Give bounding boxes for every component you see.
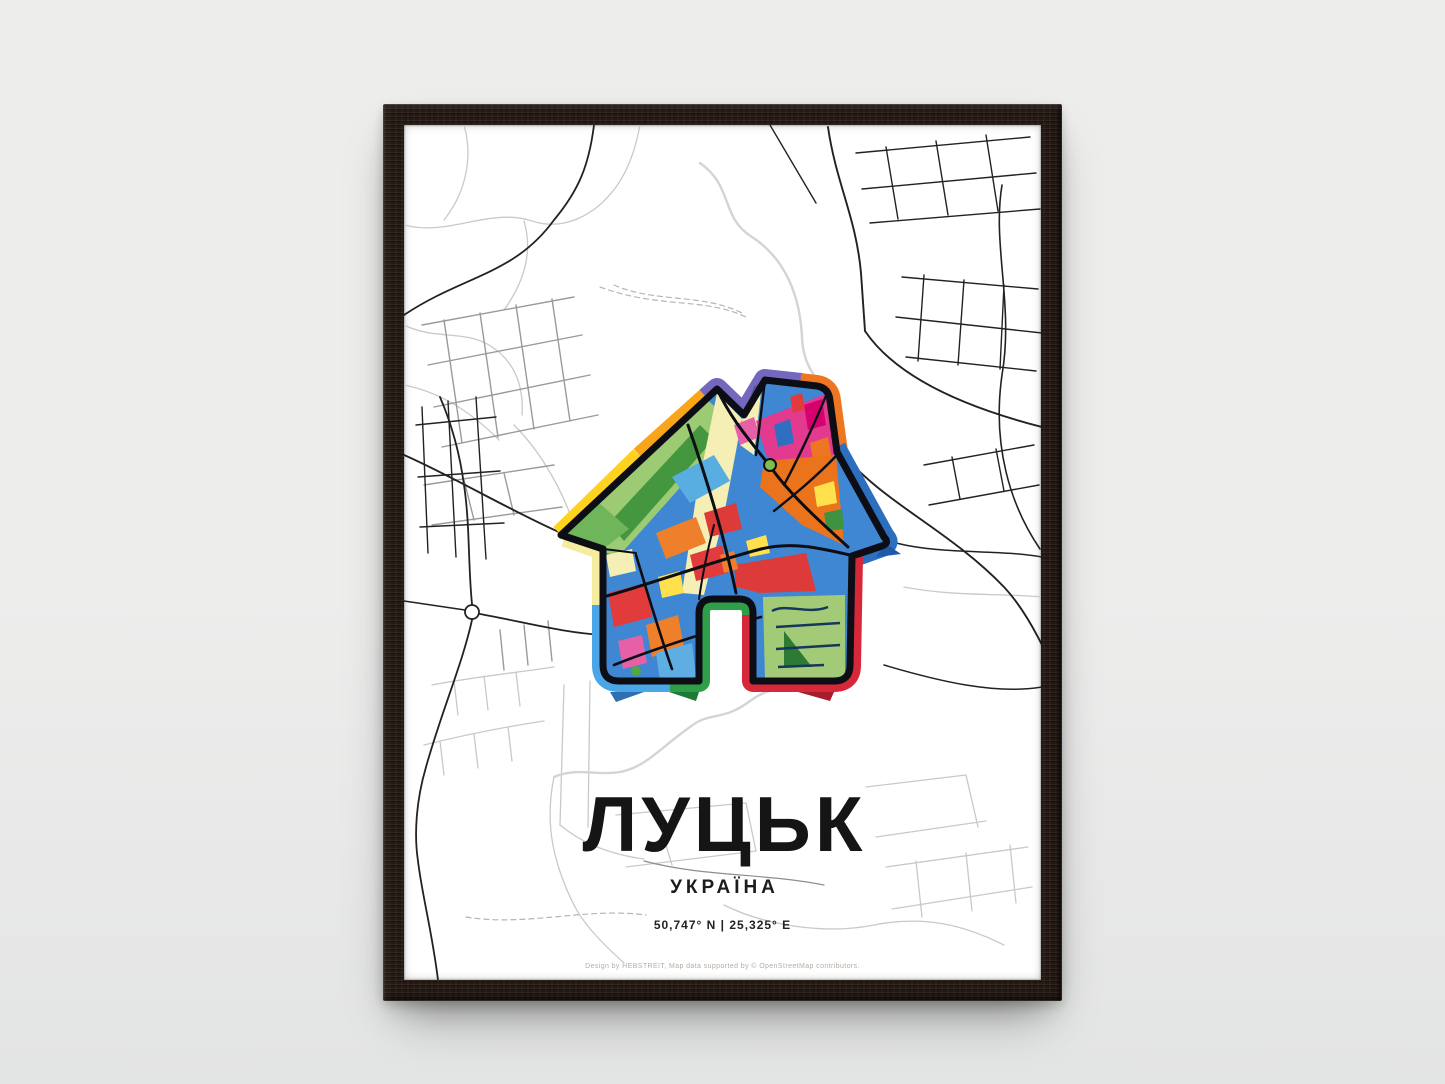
house-map-artwork [554,371,904,702]
poster-paper: ЛУЦЬК УКРАЇНА 50,747° N | 25,325° E Desi… [404,125,1041,980]
picture-frame: ЛУЦЬК УКРАЇНА 50,747° N | 25,325° E Desi… [383,104,1062,1001]
wall-background: ЛУЦЬК УКРАЇНА 50,747° N | 25,325° E Desi… [0,0,1445,1084]
street-map-graphic [404,125,1041,980]
